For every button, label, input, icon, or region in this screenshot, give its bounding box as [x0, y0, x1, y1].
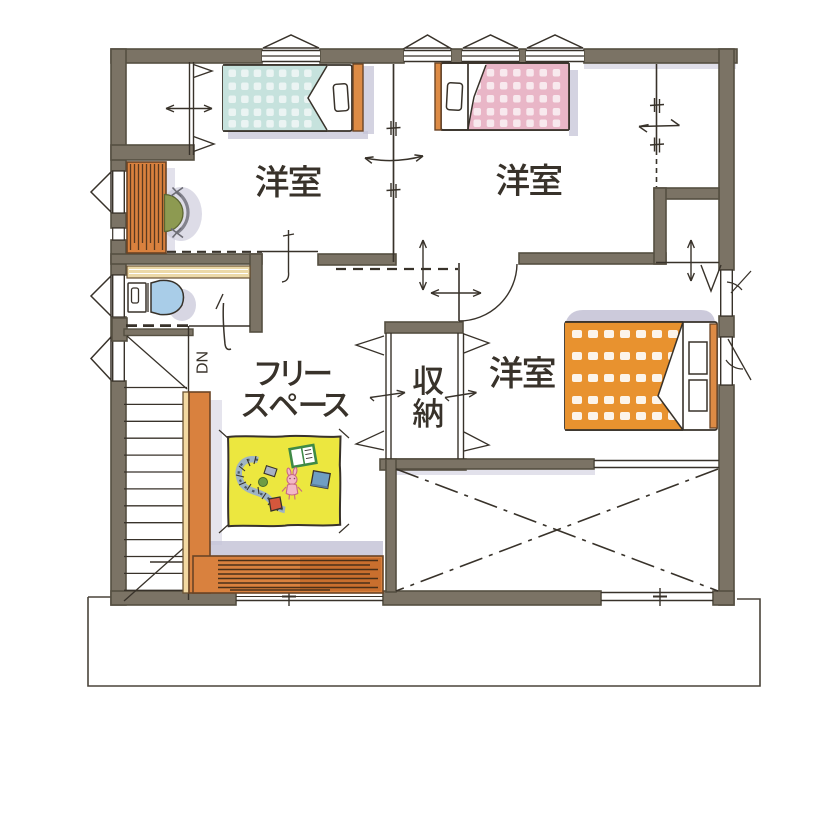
svg-text:DN: DN: [195, 351, 212, 374]
